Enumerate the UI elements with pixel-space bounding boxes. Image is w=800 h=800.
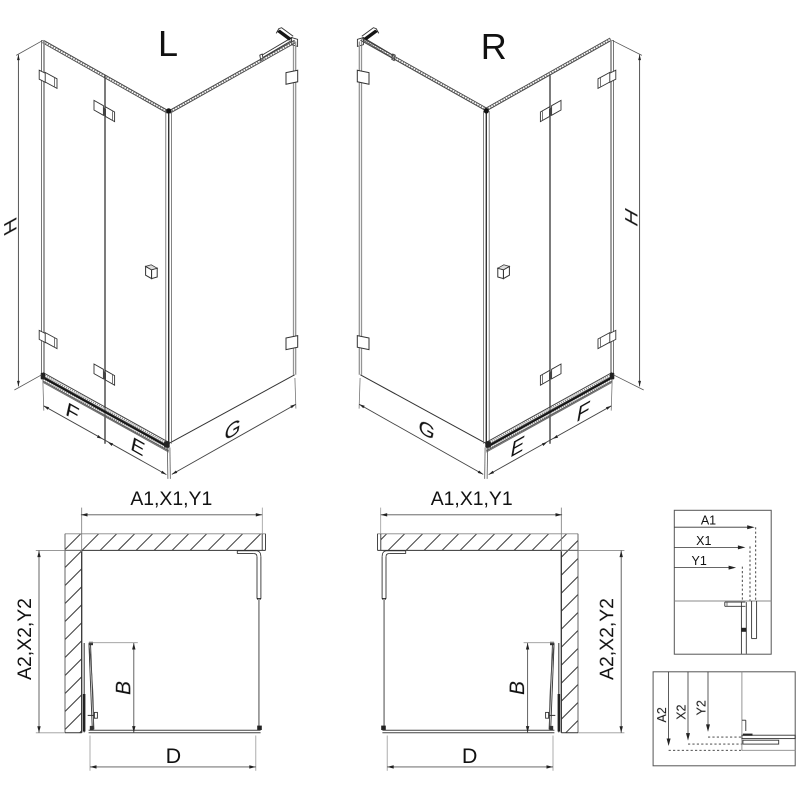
svg-text:X1: X1 [696, 534, 711, 548]
svg-text:E: E [511, 431, 525, 462]
svg-text:F: F [577, 396, 591, 427]
svg-text:B: B [112, 681, 135, 695]
svg-text:E: E [131, 431, 145, 462]
svg-text:R: R [481, 26, 507, 67]
svg-text:X2: X2 [675, 705, 689, 720]
svg-text:A2: A2 [655, 707, 669, 722]
svg-text:L: L [158, 23, 178, 64]
svg-text:A1,X1,Y1: A1,X1,Y1 [130, 488, 212, 510]
svg-text:H: H [1, 213, 21, 239]
svg-text:A2,X2,Y2: A2,X2,Y2 [596, 598, 618, 680]
svg-text:F: F [66, 396, 80, 427]
svg-text:B: B [506, 681, 529, 695]
svg-text:Y2: Y2 [695, 700, 709, 715]
svg-text:A1,X1,Y1: A1,X1,Y1 [431, 488, 513, 510]
svg-text:D: D [166, 744, 182, 768]
svg-text:G: G [419, 413, 435, 445]
svg-text:D: D [462, 744, 478, 768]
svg-text:H: H [622, 204, 642, 230]
svg-text:A2,X2,Y2: A2,X2,Y2 [14, 598, 36, 680]
svg-text:A1: A1 [701, 514, 716, 528]
svg-text:G: G [225, 413, 241, 445]
svg-text:Y1: Y1 [692, 554, 707, 568]
